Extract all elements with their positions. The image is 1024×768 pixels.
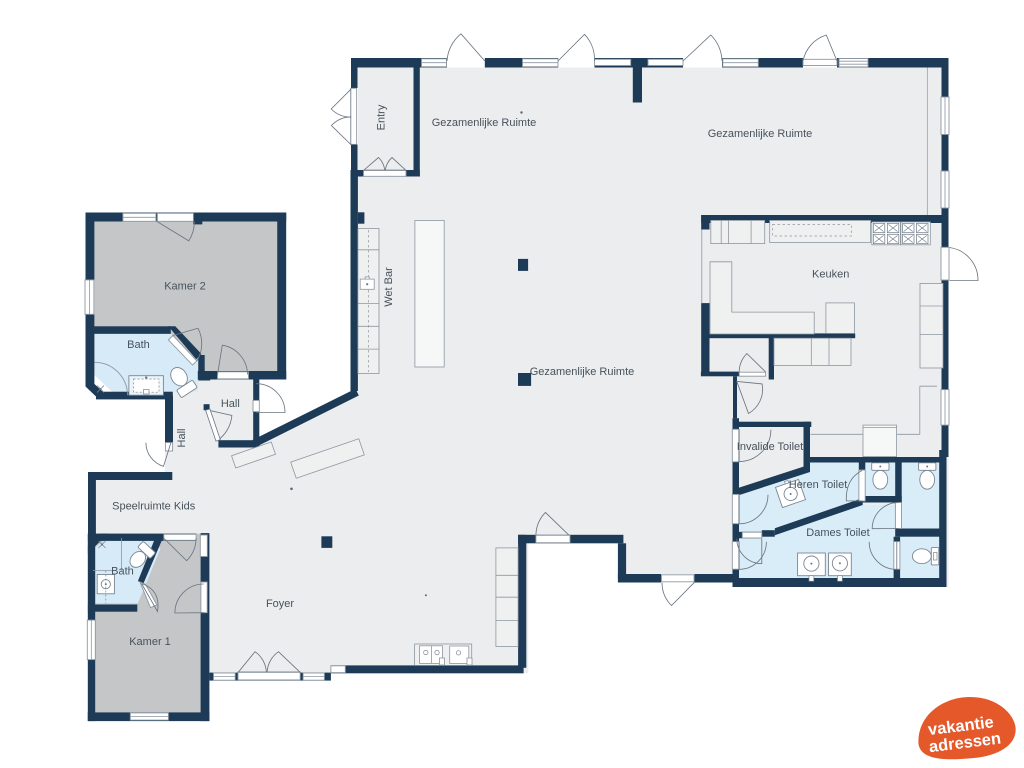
svg-text:Invalide Toilet: Invalide Toilet (737, 441, 803, 453)
svg-text:Wet Bar: Wet Bar (383, 267, 395, 307)
svg-text:Gezamenlijke Ruimte: Gezamenlijke Ruimte (432, 117, 537, 129)
svg-text:Hall: Hall (176, 429, 188, 448)
svg-text:Hall: Hall (221, 398, 240, 410)
svg-text:Bath: Bath (111, 566, 134, 578)
svg-text:Speelruimte Kids: Speelruimte Kids (112, 501, 196, 513)
svg-text:Dames Toilet: Dames Toilet (806, 527, 869, 539)
svg-text:Heren Toilet: Heren Toilet (789, 479, 848, 491)
svg-text:Entry: Entry (376, 104, 388, 130)
svg-text:Gezamenlijke Ruimte: Gezamenlijke Ruimte (530, 366, 635, 378)
svg-text:Kamer 1: Kamer 1 (129, 636, 171, 648)
svg-text:Gezamenlijke Ruimte: Gezamenlijke Ruimte (708, 128, 813, 140)
svg-text:Foyer: Foyer (266, 598, 294, 610)
svg-text:Keuken: Keuken (812, 269, 849, 281)
svg-text:Bath: Bath (127, 339, 150, 351)
svg-text:Kamer 2: Kamer 2 (164, 281, 206, 293)
